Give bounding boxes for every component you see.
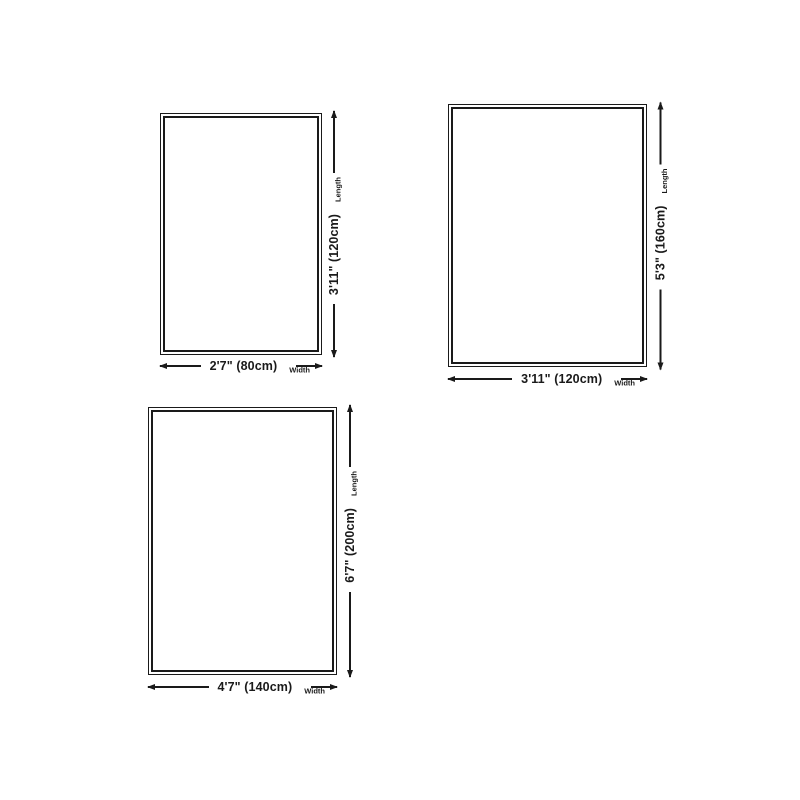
arrow-down-icon [660, 289, 662, 369]
width-dimension-small: 2'7" (80cm) Width [160, 358, 322, 374]
length-caption: Length [661, 169, 669, 194]
length-dimension-small: 3'11" (120cm) Length [326, 111, 342, 357]
rug-outline-medium [448, 104, 647, 367]
length-value: 3'11" (120cm) [327, 214, 341, 295]
rug-inner-border [163, 116, 319, 352]
arrow-down-icon [333, 304, 335, 357]
width-value: 4'7" (140cm) [218, 680, 293, 694]
width-value: 2'7" (80cm) [210, 359, 278, 373]
arrow-right-icon [311, 686, 337, 688]
rug-outline-small [160, 113, 322, 355]
width-dimension-large: 4'7" (140cm) Width [148, 679, 337, 695]
length-value: 5'3" (160cm) [654, 206, 668, 281]
width-caption: Width [614, 380, 635, 388]
arrow-right-icon [621, 378, 647, 380]
width-caption: Width [304, 688, 325, 696]
size-guide-diagram: 2'7" (80cm) Width 3'11" (120cm) Length 3… [0, 0, 800, 800]
length-caption: Length [335, 177, 343, 202]
length-dimension-large: 6'7" (200cm) Length [342, 405, 358, 677]
arrow-up-icon [660, 103, 662, 165]
arrow-left-icon [160, 365, 201, 367]
rug-inner-border [451, 107, 644, 364]
width-dimension-medium: 3'11" (120cm) Width [448, 371, 647, 387]
arrow-right-icon [296, 365, 322, 367]
arrow-left-icon [448, 378, 512, 380]
width-caption: Width [289, 367, 310, 375]
arrow-up-icon [333, 111, 335, 173]
rug-inner-border [151, 410, 334, 672]
arrow-left-icon [148, 686, 209, 688]
length-value: 6'7" (200cm) [343, 508, 357, 583]
arrow-up-icon [349, 405, 351, 467]
width-value: 3'11" (120cm) [521, 372, 602, 386]
arrow-down-icon [349, 592, 351, 677]
rug-outline-large [148, 407, 337, 675]
length-dimension-medium: 5'3" (160cm) Length [653, 103, 669, 370]
length-caption: Length [351, 471, 359, 496]
